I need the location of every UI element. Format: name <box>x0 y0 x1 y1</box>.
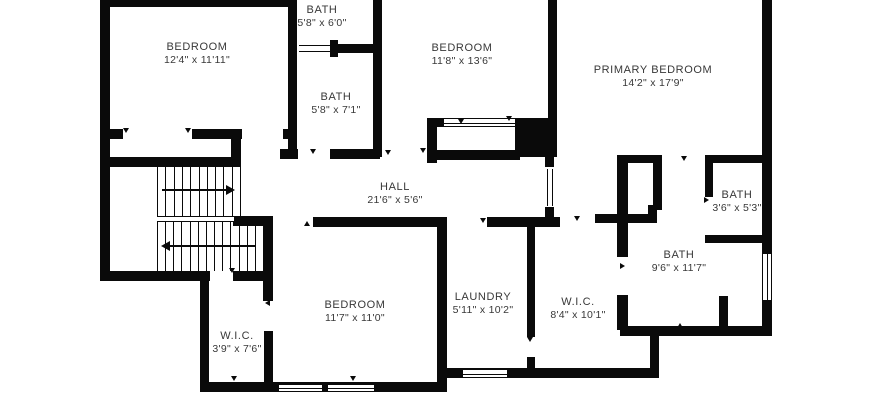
room-name: W.I.C. <box>550 296 605 309</box>
room-name: BEDROOM <box>431 42 492 55</box>
room-label: HALL21'6" x 5'6" <box>367 181 422 207</box>
floor-plan: BEDROOM12'4" x 11'11"BATH5'8" x 6'0"BATH… <box>0 0 870 420</box>
room-label: BEDROOM11'7" x 11'0" <box>324 299 385 325</box>
solid-wall-block <box>515 118 557 157</box>
room-label: W.I.C.8'4" x 10'1" <box>550 296 605 322</box>
room-dimensions: 21'6" x 5'6" <box>367 194 422 207</box>
room-dimensions: 8'4" x 10'1" <box>550 309 605 322</box>
stair-tread <box>215 167 216 216</box>
room-label: BATH3'6" x 5'3" <box>712 189 761 215</box>
wall <box>100 129 123 139</box>
door-tick <box>310 149 316 154</box>
wall <box>427 150 520 160</box>
door-leaf <box>547 169 553 206</box>
wall <box>200 382 447 392</box>
wall <box>548 0 557 122</box>
door-tick <box>480 218 486 223</box>
wall <box>545 207 554 227</box>
room-name: BEDROOM <box>324 299 385 312</box>
door-tick <box>677 323 683 328</box>
stair-tread <box>157 167 158 216</box>
door-tick <box>527 337 533 342</box>
stair-tread <box>165 167 166 216</box>
window-pane-line <box>444 123 515 124</box>
door-tick <box>185 128 191 133</box>
door-tick <box>620 263 625 269</box>
room-dimensions: 5'8" x 6'0" <box>297 17 346 30</box>
stair-tread <box>263 222 264 271</box>
room-label: BATH5'8" x 7'1" <box>311 91 360 117</box>
stair-tread <box>223 167 224 216</box>
wall <box>705 235 765 243</box>
room-label: BATH9'6" x 11'7" <box>652 249 707 275</box>
wall <box>437 217 447 373</box>
stair-tread <box>240 167 241 216</box>
window <box>762 253 772 301</box>
room-name: BEDROOM <box>164 41 230 54</box>
room-dimensions: 14'2" x 17'9" <box>594 77 713 90</box>
window <box>462 369 508 378</box>
room-label: W.I.C.3'9" x 7'6" <box>212 330 261 356</box>
room-label: BEDROOM11'8" x 13'6" <box>431 42 492 68</box>
room-label: PRIMARY BEDROOM14'2" x 17'9" <box>594 64 713 90</box>
window <box>278 384 323 392</box>
wall <box>100 271 210 281</box>
stair-tread <box>182 167 183 216</box>
room-dimensions: 11'7" x 11'0" <box>324 312 385 325</box>
wall <box>545 157 554 167</box>
room-name: LAUNDRY <box>453 291 514 304</box>
wall <box>100 0 110 281</box>
room-name: BATH <box>311 91 360 104</box>
wall <box>762 300 772 336</box>
room-dimensions: 5'8" x 7'1" <box>311 104 360 117</box>
room-name: BATH <box>297 4 346 17</box>
room-name: BATH <box>712 189 761 202</box>
window-pane-line <box>463 374 507 375</box>
stair-tread <box>199 167 200 216</box>
stair-tread <box>207 167 208 216</box>
room-name: HALL <box>367 181 422 194</box>
wall <box>653 155 662 210</box>
door-leaf <box>299 45 330 52</box>
wall <box>330 149 380 159</box>
room-dimensions: 12'4" x 11'11" <box>164 54 230 67</box>
wall <box>527 217 535 337</box>
stair-tread <box>190 167 191 216</box>
room-dimensions: 3'9" x 7'6" <box>212 343 261 356</box>
stair-direction-arrow <box>162 189 226 191</box>
window-pane-line <box>279 388 322 389</box>
wall <box>332 44 373 53</box>
wall <box>705 155 762 163</box>
door-tick <box>231 376 237 381</box>
room-label: BEDROOM12'4" x 11'11" <box>164 41 230 67</box>
wall <box>617 295 628 330</box>
wall <box>373 0 382 157</box>
wall <box>620 326 772 336</box>
wall <box>100 0 297 7</box>
door-leaf <box>157 216 234 222</box>
wall <box>617 155 628 257</box>
wall <box>650 330 659 378</box>
wall <box>103 157 241 167</box>
window <box>327 384 375 392</box>
door-tick <box>681 156 687 161</box>
window-pane-line <box>328 388 374 389</box>
door-tick <box>506 116 512 121</box>
stair-direction-arrow <box>170 245 256 247</box>
room-name: PRIMARY BEDROOM <box>594 64 713 77</box>
wall <box>280 149 298 159</box>
door-tick <box>123 128 129 133</box>
room-dimensions: 5'11" x 10'2" <box>453 304 514 317</box>
room-label: LAUNDRY5'11" x 10'2" <box>453 291 514 317</box>
door-tick <box>350 376 356 381</box>
door-tick <box>385 150 391 155</box>
stair-tread <box>174 167 175 216</box>
window-pane-line <box>767 254 768 300</box>
door-tick <box>574 216 580 221</box>
room-dimensions: 11'8" x 13'6" <box>431 55 492 68</box>
wall <box>283 129 297 139</box>
wall <box>527 357 535 373</box>
room-dimensions: 3'6" x 5'3" <box>712 202 761 215</box>
room-name: BATH <box>652 249 707 262</box>
stair-tread <box>157 222 158 271</box>
room-dimensions: 9'6" x 11'7" <box>652 262 707 275</box>
door-tick <box>420 148 426 153</box>
wall <box>719 296 728 330</box>
door-tick <box>458 119 464 124</box>
door-tick <box>229 268 235 273</box>
room-name: W.I.C. <box>212 330 261 343</box>
wall <box>263 217 273 301</box>
stair-direction-arrowhead <box>161 241 170 251</box>
wall <box>200 271 209 382</box>
door-tick <box>265 300 270 306</box>
wall <box>762 0 772 254</box>
door-tick <box>304 221 310 226</box>
stair-direction-arrowhead <box>226 185 235 195</box>
door-tick <box>704 197 709 203</box>
room-label: BATH5'8" x 6'0" <box>297 4 346 30</box>
door-tick <box>345 218 351 223</box>
wall <box>313 217 438 227</box>
